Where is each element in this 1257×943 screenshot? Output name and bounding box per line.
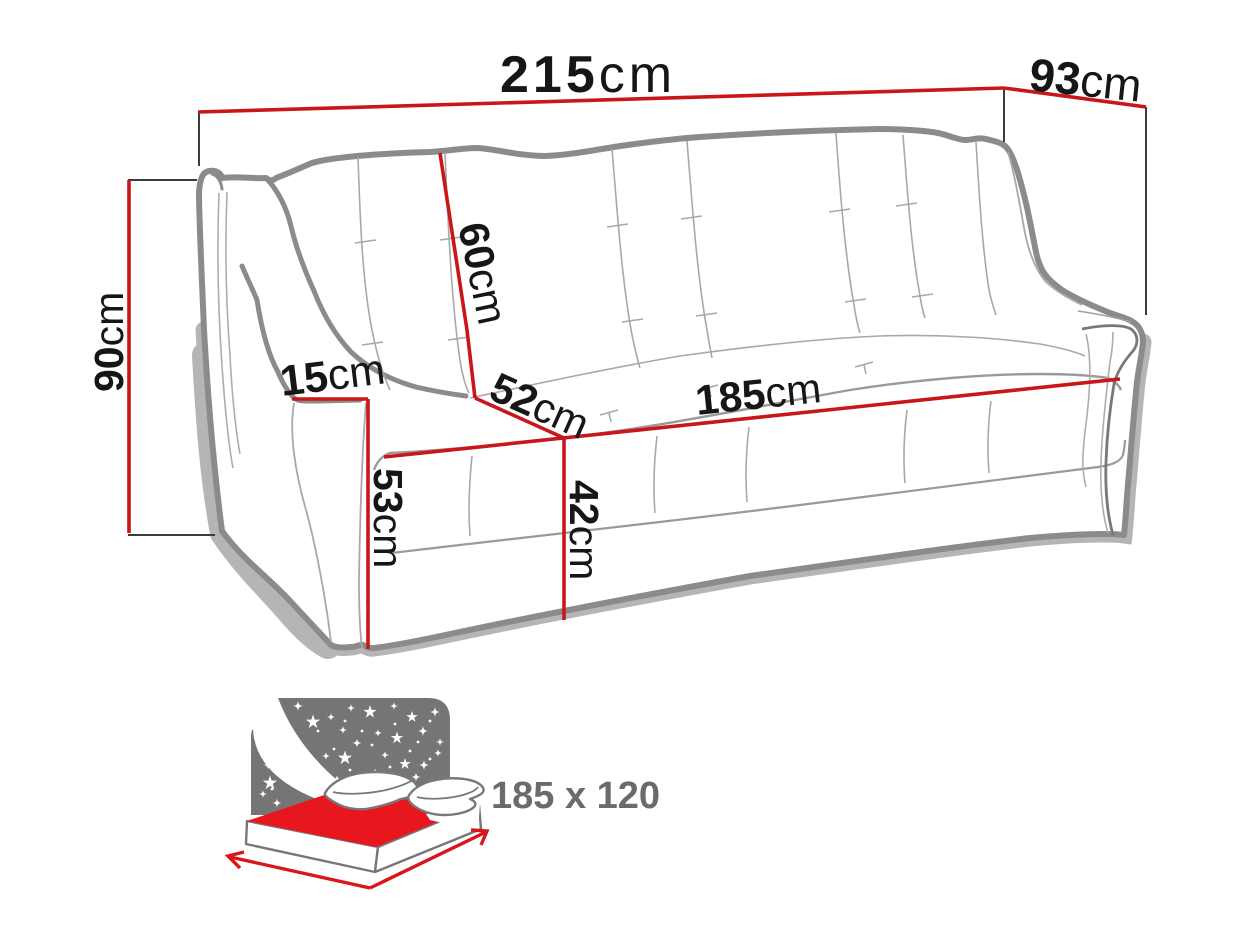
svg-text:53cm: 53cm [365, 468, 411, 568]
svg-text:185 x 120: 185 x 120 [491, 775, 660, 817]
svg-text:215cm: 215cm [500, 46, 676, 104]
svg-text:42cm: 42cm [561, 480, 607, 580]
svg-text:90cm: 90cm [86, 292, 132, 392]
